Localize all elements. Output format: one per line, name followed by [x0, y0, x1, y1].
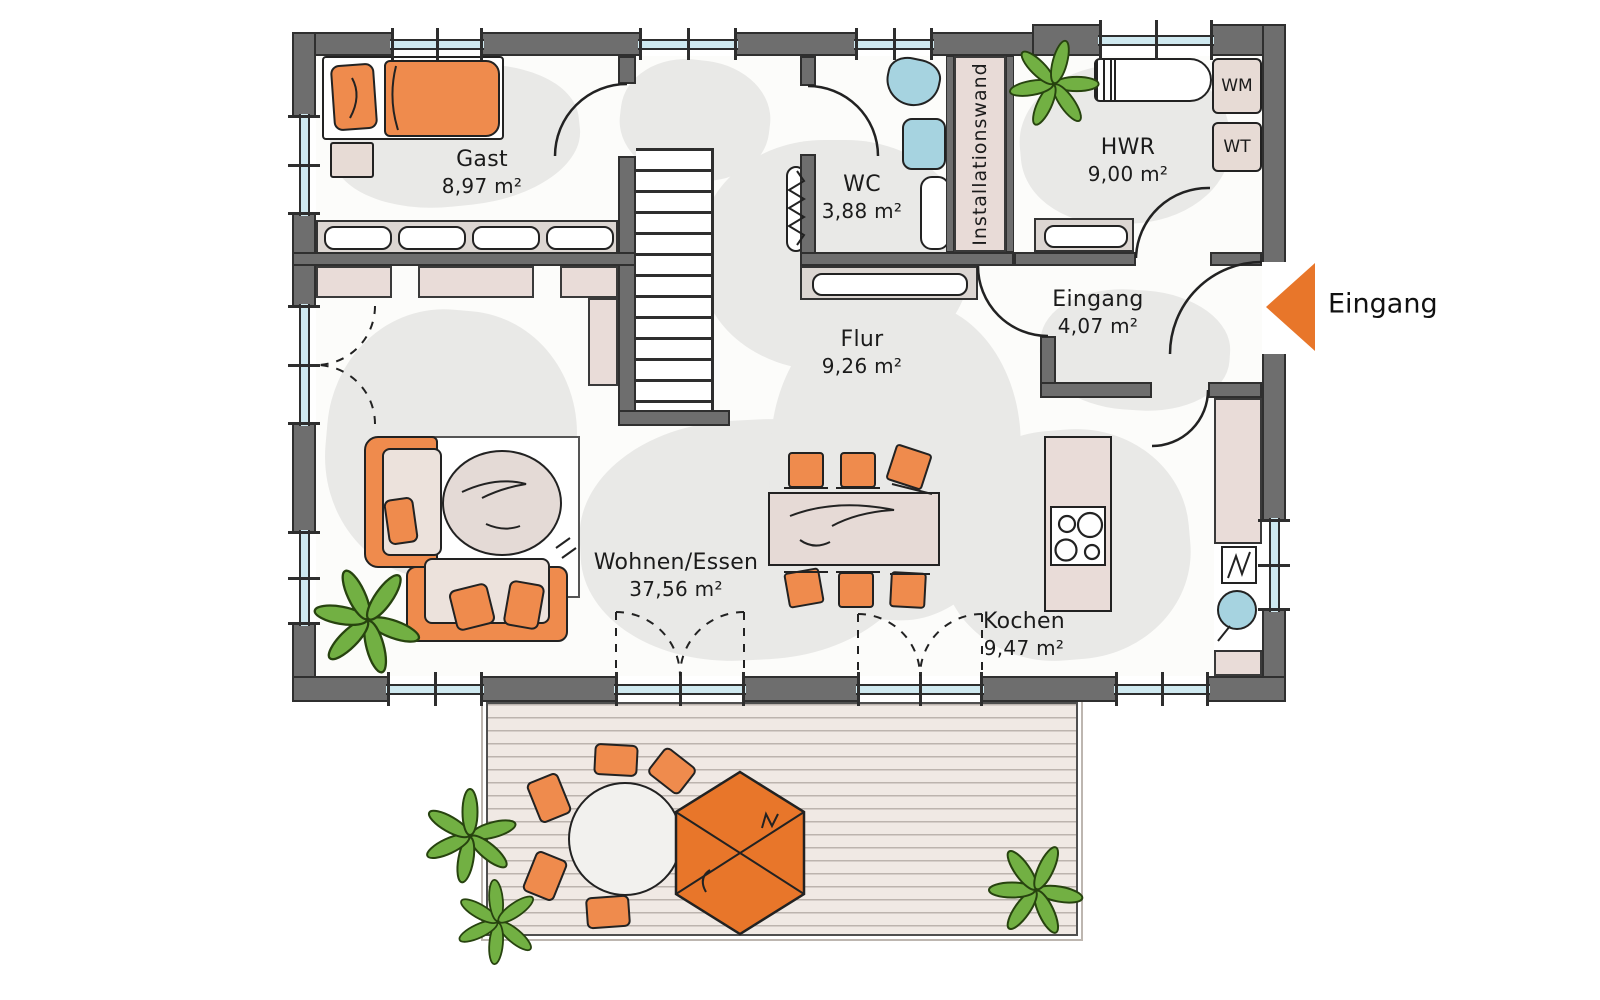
window	[1262, 520, 1286, 610]
cooktop	[1050, 506, 1106, 566]
sideboard	[418, 266, 534, 298]
wall-wc-bottom	[800, 252, 1014, 266]
water-heater	[1094, 58, 1212, 102]
guest-nightstand	[330, 142, 374, 178]
kitchen-sink	[1221, 546, 1257, 584]
window	[392, 32, 482, 56]
dining-chair	[788, 452, 824, 488]
wardrobe-door	[472, 226, 540, 250]
dining-chair	[838, 572, 874, 608]
sofa-cushion	[383, 496, 419, 546]
bench-door	[812, 273, 968, 296]
room-name: HWR	[1088, 134, 1169, 162]
room-label-flur: Flur 9,26 m²	[822, 326, 903, 379]
room-area: 37,56 m²	[594, 576, 759, 601]
wall-kochen-top	[1208, 382, 1262, 398]
room-area: 3,88 m²	[822, 198, 903, 223]
guest-wardrobe	[316, 220, 618, 254]
entrance-outside-label: Eingang	[1328, 289, 1438, 320]
room-name: Gast	[442, 146, 523, 174]
sideboard-door	[1044, 225, 1128, 248]
room-area: 8,97 m²	[442, 173, 523, 198]
hall-bench	[800, 266, 978, 300]
terrace-chair	[585, 895, 631, 930]
heater-cap	[1096, 60, 1116, 100]
room-name: Flur	[822, 326, 903, 354]
room-label-hwr: HWR 9,00 m²	[1088, 134, 1169, 187]
room-name: WC	[822, 171, 903, 199]
window	[1100, 24, 1212, 56]
dining-chair	[840, 452, 876, 488]
wall-hwr-bottom-right	[1210, 252, 1262, 266]
hwr-sideboard	[1034, 218, 1134, 252]
guest-bed-duvet	[384, 60, 500, 137]
room-name: Wohnen/Essen	[594, 549, 759, 577]
entrance-opening	[1262, 262, 1286, 354]
sideboard	[316, 266, 392, 298]
wardrobe-door	[398, 226, 466, 250]
wall-inst-left	[946, 56, 954, 252]
floor-plan: WM WT	[0, 0, 1600, 1000]
sideboard-tall	[588, 298, 618, 386]
window	[388, 676, 482, 702]
window	[292, 532, 316, 624]
wardrobe-door	[546, 226, 614, 250]
sideboard	[560, 266, 618, 298]
installation-wall-label: Installationswand	[969, 62, 991, 245]
window	[856, 32, 932, 56]
wall-gast-bottom	[292, 252, 636, 266]
staircase	[636, 148, 714, 412]
room-area: 9,00 m²	[1088, 161, 1169, 186]
wall-gast-stub	[618, 56, 636, 84]
room-name: Kochen	[983, 608, 1065, 636]
wall-gast-stair	[618, 156, 636, 424]
french-door-left	[292, 306, 316, 424]
wall-wc-stub	[800, 56, 816, 86]
dining-chair	[783, 567, 825, 609]
coffee-table	[442, 450, 562, 556]
room-label-kochen: Kochen 9,47 m²	[983, 608, 1065, 661]
kitchen-basin	[1217, 590, 1257, 630]
wall-stair-bottom	[618, 410, 730, 426]
room-label-gast: Gast 8,97 m²	[442, 146, 523, 199]
room-label-eingang: Eingang 4,07 m²	[1052, 286, 1143, 339]
dining-table	[768, 492, 940, 566]
dryer-label: WT	[1212, 122, 1262, 172]
room-name: Eingang	[1052, 286, 1143, 314]
terrace-chair	[593, 743, 639, 777]
room-label-wc: WC 3,88 m²	[822, 171, 903, 224]
dining-chair	[889, 571, 927, 609]
french-door-terrace	[858, 676, 982, 702]
terrace-table	[568, 782, 682, 896]
window	[1116, 676, 1208, 702]
wc-sink	[902, 118, 946, 170]
guest-bed-pillow	[330, 63, 378, 132]
window	[292, 116, 316, 214]
room-label-wohnen-essen: Wohnen/Essen 37,56 m²	[594, 549, 759, 602]
french-door-terrace	[616, 676, 744, 702]
wardrobe-door	[324, 226, 392, 250]
wall-eingang-horiz	[1040, 382, 1152, 398]
wall-hwr-bottom-left	[1014, 252, 1136, 266]
kitchen-counter	[1214, 398, 1262, 676]
wall-wc-left	[800, 154, 816, 254]
room-area: 4,07 m²	[1052, 313, 1143, 338]
washing-machine-label: WM	[1212, 58, 1262, 114]
window	[640, 32, 736, 56]
wall-inst-right	[1006, 56, 1014, 252]
room-area: 9,47 m²	[983, 635, 1065, 660]
room-area: 9,26 m²	[822, 353, 903, 378]
